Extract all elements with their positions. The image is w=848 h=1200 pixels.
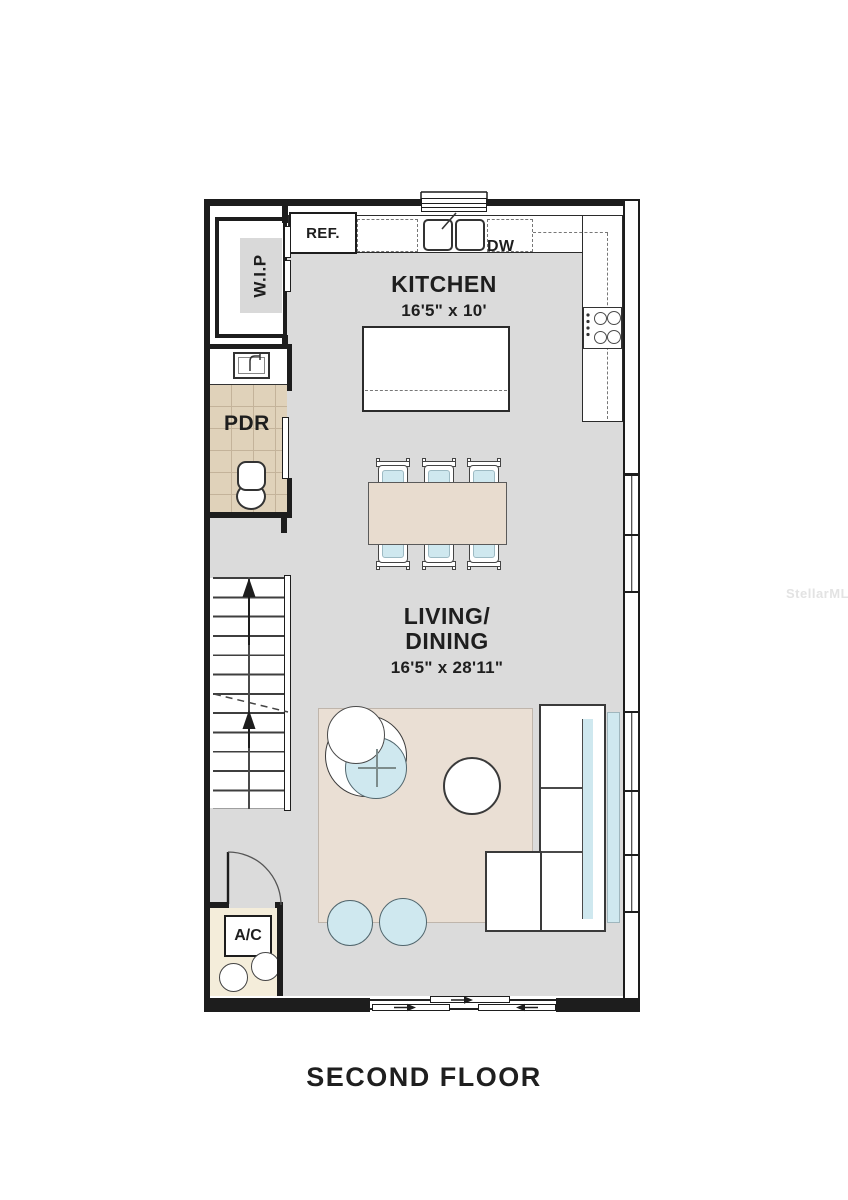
wall-right-upper	[623, 199, 640, 475]
living-label-line1: LIVING/	[344, 604, 550, 629]
living-dims: 16'5" x 28'11"	[344, 659, 550, 677]
ac-unit: A/C	[224, 915, 272, 957]
living-label-line2: DINING	[344, 629, 550, 654]
wall-bottom-left	[204, 998, 370, 1012]
window-divider	[625, 854, 638, 856]
cooktop-burner-2	[607, 311, 621, 325]
utility-wall-top-left	[204, 902, 229, 908]
powder-wall-top	[204, 344, 288, 349]
powder-pocket-door	[282, 417, 289, 479]
coffee-table	[443, 757, 501, 815]
powder-sink	[233, 352, 270, 379]
dining-table	[368, 482, 507, 545]
sliding-door-panel-3	[478, 1004, 556, 1011]
sliding-door-panel-1	[372, 1004, 450, 1011]
window-right-2	[623, 711, 640, 913]
powder-sink-inner	[238, 357, 265, 374]
sofa-seam-2	[541, 851, 582, 853]
kitchen-island	[362, 326, 510, 412]
pouf-left	[327, 900, 373, 946]
window-right-1	[623, 474, 640, 593]
plan-title: SECOND FLOOR	[0, 1062, 848, 1093]
laundry-drum-left	[219, 963, 248, 992]
pantry-wall-stub-top	[282, 199, 288, 223]
pantry-door-leaf-1	[284, 226, 291, 258]
upper-cabinet-dashed	[357, 219, 418, 252]
toilet-tank	[237, 461, 266, 491]
window-glass	[631, 713, 633, 911]
sofa-chaise	[485, 851, 542, 932]
wall-bottom-right	[556, 998, 640, 1012]
ac-label: A/C	[234, 927, 262, 945]
stairs-handrail	[284, 575, 291, 811]
armchair-plus-v	[376, 749, 378, 787]
sofa-back-cushion	[582, 719, 593, 919]
window-top	[421, 198, 487, 212]
cooktop-burner-3	[594, 331, 607, 344]
island-overhang-dashed	[365, 390, 507, 392]
powder-wall-bottom	[204, 512, 288, 518]
dishwasher-label: DW	[487, 238, 514, 256]
pouf-right	[379, 898, 427, 946]
utility-wall-right	[277, 902, 283, 996]
cooktop-burner-4	[607, 330, 621, 344]
pantry-label: W.I.P	[251, 254, 271, 297]
window-divider	[625, 790, 638, 792]
kitchen-label-group: KITCHEN 16'5" x 10'	[344, 272, 544, 320]
window-divider	[625, 534, 638, 536]
powder-label: PDR	[224, 412, 270, 436]
sliding-door-panel-2	[430, 996, 510, 1003]
sofa	[539, 704, 606, 932]
wall-right-mid	[623, 591, 640, 713]
kitchen-label: KITCHEN	[344, 272, 544, 297]
sofa-seam-1	[541, 787, 582, 789]
kitchen-sink-basin-left	[423, 219, 453, 251]
stairs-center-line	[248, 577, 250, 809]
hall-landing-floor	[210, 518, 288, 578]
watermark: StellarMLS	[786, 586, 848, 601]
living-label-group: LIVING/ DINING 16'5" x 28'11"	[344, 604, 550, 677]
sofa-window-band	[607, 712, 620, 923]
pantry-interior: W.I.P	[240, 238, 282, 313]
powder-wall-right-upper	[287, 344, 292, 391]
refrigerator-label: REF.	[306, 225, 340, 242]
kitchen-dims: 16'5" x 10'	[344, 302, 544, 320]
window-mullion	[422, 203, 486, 205]
cabinet-dashed-line-h	[533, 232, 608, 234]
refrigerator: REF.	[289, 212, 357, 254]
laundry-drum-right	[251, 952, 280, 981]
wall-right-lower	[623, 911, 640, 1012]
pantry-door-leaf-2	[284, 260, 291, 292]
kitchen-sink-basin-right	[455, 219, 485, 251]
floor-plan-page: REF.	[0, 0, 848, 1200]
cooktop-burner-1	[594, 312, 607, 325]
wall-left	[204, 199, 210, 1012]
landing-wall-stub	[281, 518, 287, 533]
window-mullion	[422, 207, 486, 209]
